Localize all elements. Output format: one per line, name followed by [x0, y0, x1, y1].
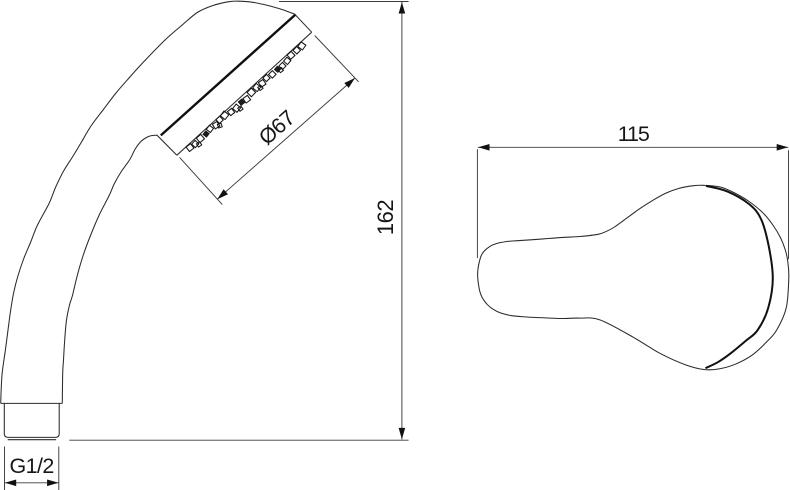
- svg-text:G1/2: G1/2: [9, 454, 53, 478]
- svg-text:162: 162: [373, 200, 398, 235]
- svg-text:115: 115: [618, 122, 650, 146]
